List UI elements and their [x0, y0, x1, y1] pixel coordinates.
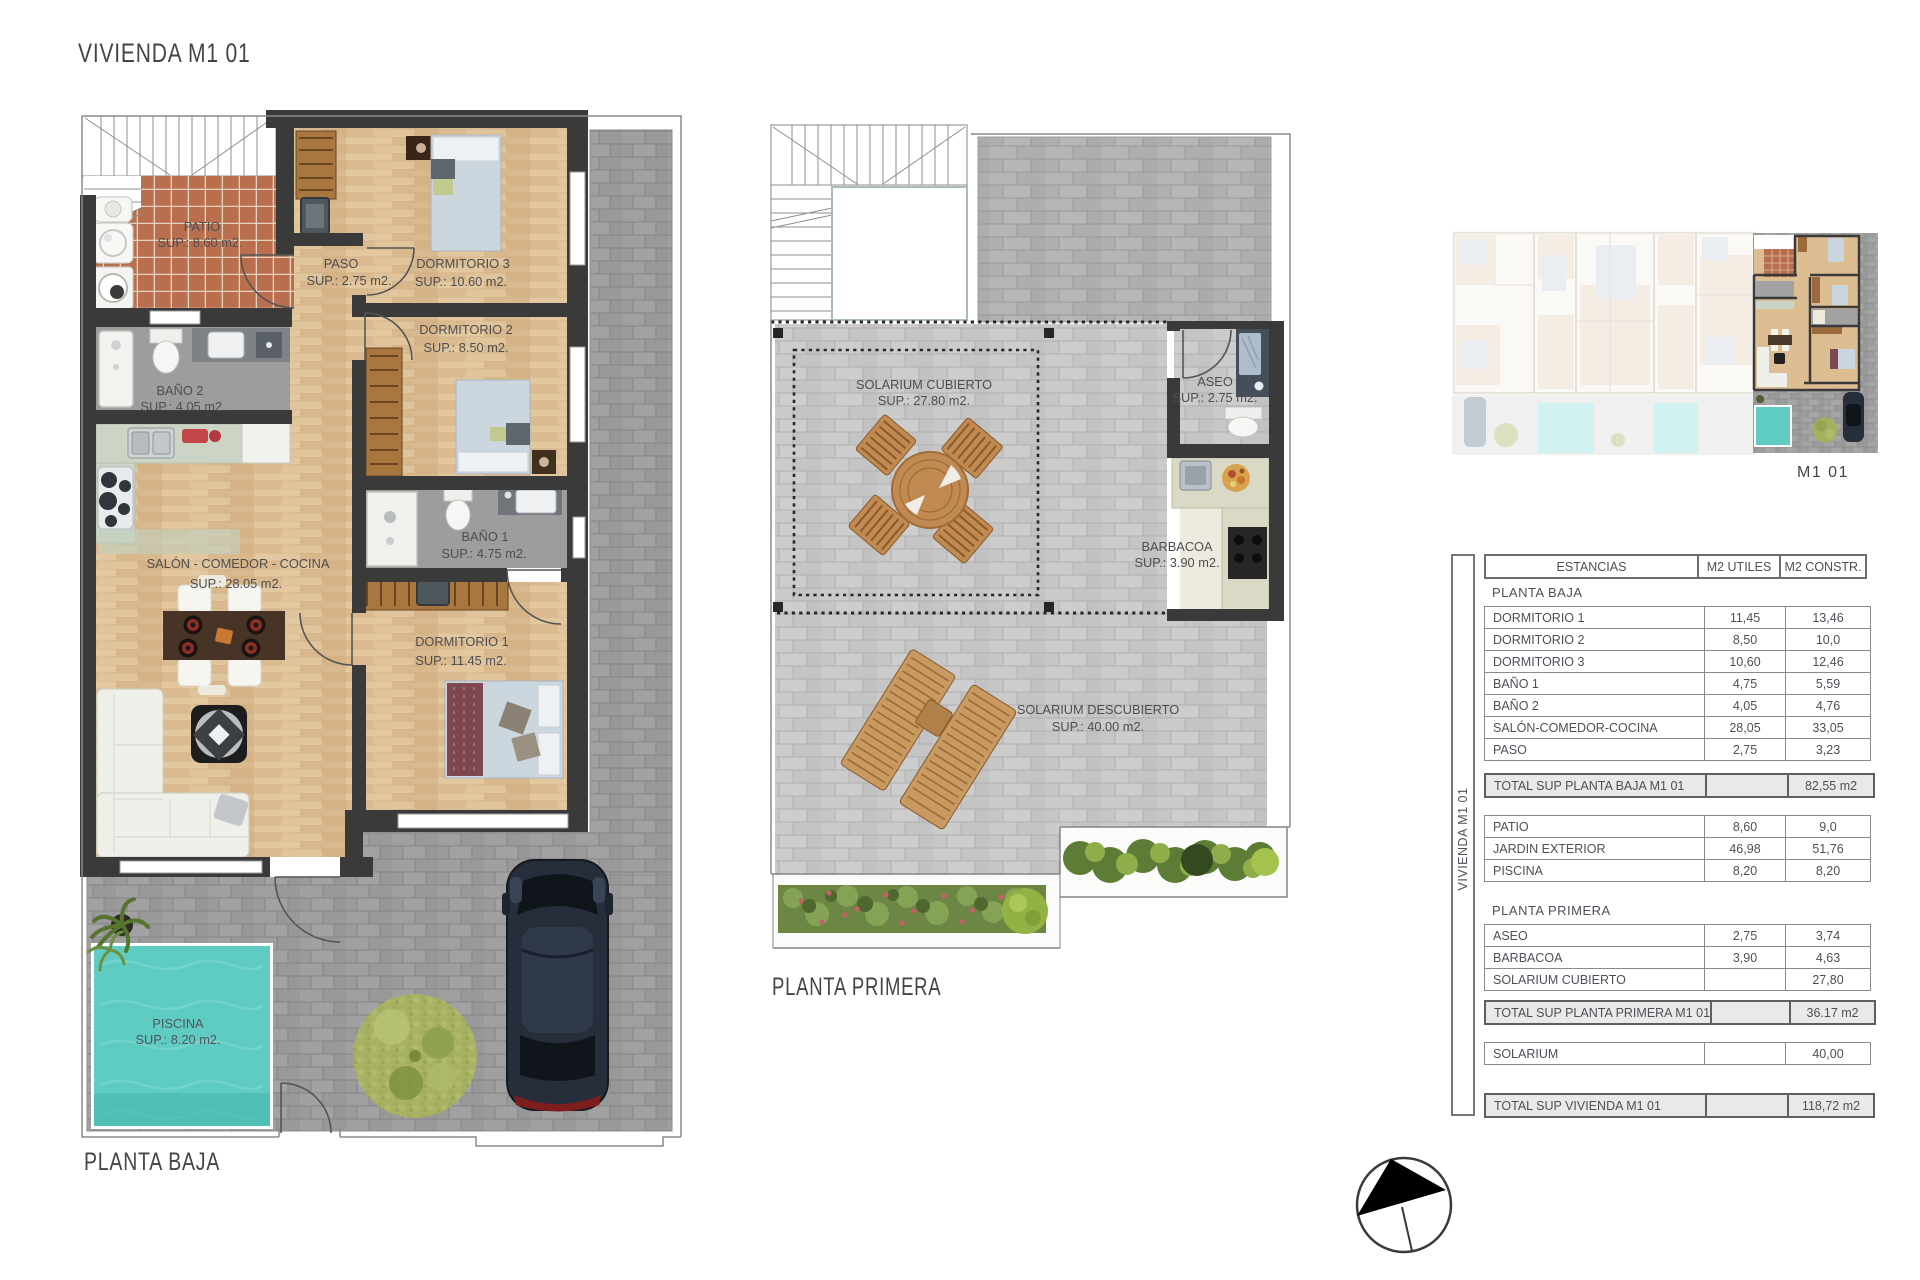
svg-text:SUP.: 8.60 m2.: SUP.: 8.60 m2. — [157, 235, 242, 250]
svg-text:SALÓN - COMEDOR - COCINA: SALÓN - COMEDOR - COCINA — [147, 556, 330, 571]
svg-text:BAÑO 1: BAÑO 1 — [462, 529, 509, 544]
svg-text:BAÑO 2: BAÑO 2 — [157, 383, 204, 398]
svg-text:SUP.: 11.45 m2.: SUP.: 11.45 m2. — [415, 653, 506, 668]
svg-text:SUP.: 8.50 m2.: SUP.: 8.50 m2. — [423, 340, 508, 355]
svg-text:SUP.: 2.75 m2.: SUP.: 2.75 m2. — [306, 273, 391, 288]
svg-text:DORMITORIO 2: DORMITORIO 2 — [419, 322, 513, 337]
svg-text:PATIO: PATIO — [184, 219, 221, 234]
svg-text:SOLARIUM DESCUBIERTO: SOLARIUM DESCUBIERTO — [1017, 702, 1179, 717]
svg-text:SUP.: 3.90 m2.: SUP.: 3.90 m2. — [1134, 555, 1219, 570]
svg-text:ASEO: ASEO — [1197, 374, 1233, 389]
svg-text:SUP.: 10.60 m2.: SUP.: 10.60 m2. — [415, 274, 507, 289]
svg-text:DORMITORIO 1: DORMITORIO 1 — [415, 634, 509, 649]
svg-text:SUP.: 4.05 m2.: SUP.: 4.05 m2. — [140, 399, 225, 414]
svg-text:BARBACOA: BARBACOA — [1141, 539, 1213, 554]
svg-text:PASO: PASO — [324, 256, 359, 271]
svg-text:SUP.: 40.00 m2.: SUP.: 40.00 m2. — [1052, 719, 1144, 734]
svg-text:SUP.: 27.80 m2.: SUP.: 27.80 m2. — [878, 393, 970, 408]
svg-text:SOLARIUM CUBIERTO: SOLARIUM CUBIERTO — [856, 377, 992, 392]
svg-text:DORMITORIO 3: DORMITORIO 3 — [416, 256, 510, 271]
svg-text:SUP.: 8.20 m2.: SUP.: 8.20 m2. — [135, 1032, 220, 1047]
svg-text:PISCINA: PISCINA — [152, 1016, 204, 1031]
svg-text:SUP.: 4.75 m2.: SUP.: 4.75 m2. — [441, 546, 526, 561]
svg-text:SUP.: 2.75 m2.: SUP.: 2.75 m2. — [1172, 390, 1257, 405]
svg-text:SUP.: 28.05 m2.: SUP.: 28.05 m2. — [190, 576, 282, 591]
